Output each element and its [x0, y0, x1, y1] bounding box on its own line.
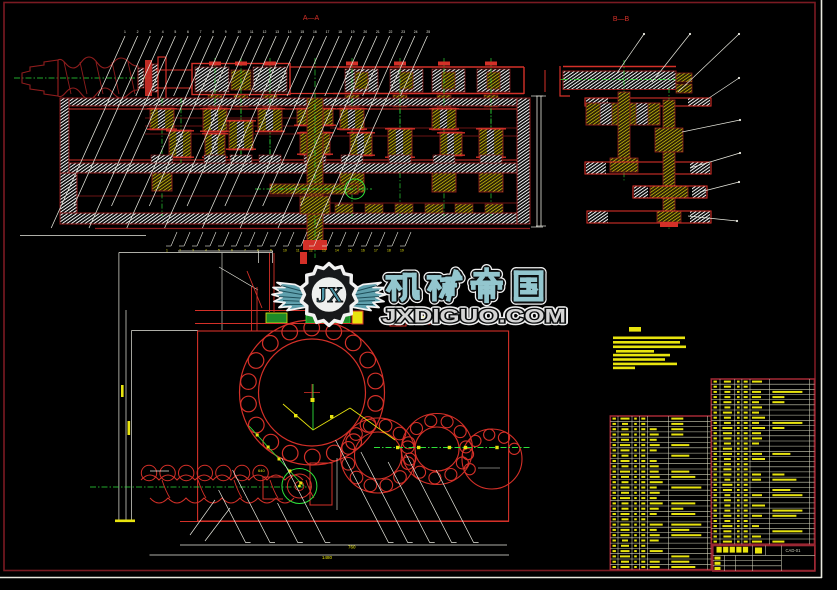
- svg-text:12: 12: [263, 30, 267, 34]
- svg-text:1: 1: [124, 30, 126, 34]
- svg-text:19: 19: [400, 249, 404, 253]
- svg-text:2: 2: [179, 249, 181, 253]
- svg-text:21: 21: [376, 30, 380, 34]
- svg-text:B—B: B—B: [613, 16, 630, 23]
- svg-text:JX: JX: [316, 282, 343, 307]
- svg-text:JXDIGUO.COM: JXDIGUO.COM: [382, 307, 566, 328]
- svg-text:1480: 1480: [322, 555, 333, 560]
- svg-text:14: 14: [335, 249, 339, 253]
- svg-text:3: 3: [192, 249, 194, 253]
- svg-text:20: 20: [363, 30, 367, 34]
- svg-text:4: 4: [162, 30, 164, 34]
- svg-text:4: 4: [205, 249, 207, 253]
- svg-text:3: 3: [149, 30, 151, 34]
- svg-text:CAD-01: CAD-01: [786, 548, 802, 553]
- svg-text:12: 12: [309, 249, 313, 253]
- svg-text:11: 11: [296, 249, 300, 253]
- svg-text:640: 640: [258, 468, 265, 473]
- svg-text:22: 22: [389, 30, 393, 34]
- svg-text:6: 6: [187, 30, 189, 34]
- svg-text:16: 16: [361, 249, 365, 253]
- svg-text:7: 7: [244, 249, 246, 253]
- svg-text:760: 760: [348, 545, 356, 550]
- svg-text:23: 23: [401, 30, 405, 34]
- svg-text:A—A: A—A: [303, 15, 320, 22]
- svg-text:10: 10: [237, 30, 241, 34]
- svg-text:15: 15: [348, 249, 352, 253]
- svg-text:2: 2: [137, 30, 139, 34]
- svg-text:9: 9: [270, 249, 272, 253]
- svg-text:9: 9: [225, 30, 227, 34]
- svg-text:18: 18: [387, 249, 391, 253]
- svg-text:13: 13: [322, 249, 326, 253]
- svg-text:5: 5: [174, 30, 176, 34]
- svg-text:7: 7: [200, 30, 202, 34]
- svg-text:17: 17: [374, 249, 378, 253]
- svg-text:5: 5: [218, 249, 220, 253]
- svg-text:24: 24: [414, 30, 418, 34]
- svg-text:13: 13: [275, 30, 279, 34]
- svg-text:14: 14: [288, 30, 292, 34]
- svg-text:17: 17: [326, 30, 330, 34]
- svg-text:1: 1: [166, 249, 168, 253]
- svg-text:8: 8: [212, 30, 214, 34]
- svg-text:25: 25: [426, 30, 430, 34]
- svg-text:15: 15: [300, 30, 304, 34]
- svg-text:18: 18: [338, 30, 342, 34]
- svg-text:16: 16: [313, 30, 317, 34]
- svg-text:10: 10: [283, 249, 287, 253]
- svg-text:19: 19: [351, 30, 355, 34]
- svg-text:6: 6: [231, 249, 233, 253]
- svg-text:11: 11: [250, 30, 254, 34]
